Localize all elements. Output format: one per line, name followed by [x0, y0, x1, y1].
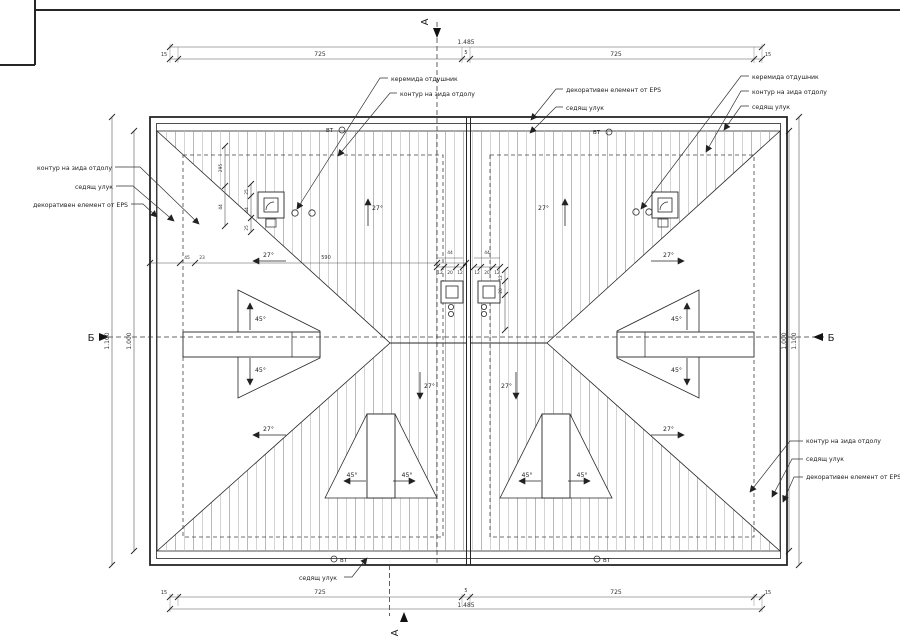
callout-gutter-top-right: седящ улук	[752, 104, 790, 111]
angle-east-upper: 27°	[663, 251, 674, 259]
dim-bottom-edge-left: 15	[161, 590, 167, 596]
dim-chimney-l-20: 20	[447, 270, 453, 276]
dim-bottom-seg-right: 725	[610, 589, 622, 596]
callout-eps-left: декоративен елемент от EPS	[33, 202, 128, 209]
vent-label-top-left: ВТ	[326, 128, 334, 134]
section-a-label-bottom: А	[390, 629, 401, 636]
angle-south-left: 27°	[424, 382, 435, 390]
dimensions-bottom: 15 725 5 725 15 1.485	[161, 588, 771, 612]
callout-tile-vent-top-right: керемида отдушник	[752, 74, 819, 81]
dim-cc-12: 12	[498, 275, 504, 281]
angle-north-right: 27°	[538, 204, 549, 212]
dim-right-outer: 1.100	[791, 332, 798, 349]
callout-wall-contour-top-right: контур на зида отдолу	[752, 89, 827, 96]
callout-wall-contour-left: контур на зида отдолу	[37, 165, 112, 172]
vent-label-bottom-left: ВТ	[340, 558, 348, 564]
dim-top-gap: 5	[464, 50, 467, 56]
angle-west-upper: 27°	[263, 251, 274, 259]
dim-int-45: 45	[184, 255, 190, 261]
dimensions-top: 1.485 15 725 5 725 15	[161, 39, 771, 63]
roof-plan-sheet: А А Б Б 1.485 15 725 5 725 15 15 725 5 7…	[0, 0, 900, 640]
angle-dormer-right-down: 45°	[671, 366, 682, 374]
angle-dormer-br-left: 45°	[522, 471, 533, 479]
dim-bottom-edge-right: 15	[765, 590, 771, 596]
dim-chimney-r-12b: 12	[494, 270, 500, 276]
callout-tile-vent-top-left: керемида отдушник	[391, 76, 458, 83]
dim-bottom-seg-left: 725	[314, 589, 326, 596]
dim-chimney-r-12a: 12	[474, 270, 480, 276]
dim-left-inner: 1.000	[126, 332, 133, 349]
dim-hip-295: 295	[218, 164, 224, 173]
section-a-label-top: А	[420, 18, 431, 25]
dim-hip-44: 44	[218, 204, 224, 210]
angle-west-lower: 27°	[263, 425, 274, 433]
dim-chimney-l-44: 44	[447, 250, 453, 256]
dim-chimney-tl-44: 44	[244, 207, 250, 213]
dim-top-total: 1.485	[457, 39, 474, 46]
angle-dormer-bl-left: 45°	[347, 471, 358, 479]
party-wall	[467, 117, 471, 565]
callout-gutter-right: седящ улук	[806, 456, 844, 463]
callout-wall-contour-top-left: контур на зида отдолу	[400, 91, 475, 98]
callout-eps-top-center: декоративен елемент от EPS	[566, 87, 661, 94]
section-b-label-left: Б	[88, 333, 95, 344]
dim-top-seg-left: 725	[314, 51, 326, 58]
dim-top-edge-right: 15	[765, 52, 771, 58]
dim-chimney-r-44: 44	[484, 250, 490, 256]
dim-bottom-gap: 5	[464, 588, 467, 594]
dim-left-outer: 1.100	[104, 332, 111, 349]
dim-int-23: 23	[199, 255, 205, 261]
dim-top-edge-left: 15	[161, 52, 167, 58]
roof-plan-drawing: А А Б Б 1.485 15 725 5 725 15 15 725 5 7…	[0, 0, 900, 640]
vent-label-top-right: ВТ	[593, 130, 601, 136]
angle-dormer-bl-right: 45°	[402, 471, 413, 479]
angle-dormer-left-down: 45°	[255, 366, 266, 374]
section-b-label-right: Б	[828, 333, 835, 344]
angle-dormer-br-right: 45°	[577, 471, 588, 479]
callout-gutter-bottom: седящ улук	[299, 575, 337, 582]
dim-chimney-tl-25b: 25	[244, 225, 250, 231]
dimensions-left: 1.100 1.000	[104, 114, 137, 568]
dim-chimney-l-12b: 12	[457, 270, 463, 276]
callout-wall-contour-right: контур на зида отдолу	[806, 438, 881, 445]
callout-eps-right: декоративен елемент от EPS	[806, 474, 900, 481]
vent-label-bottom-right: ВТ	[603, 558, 611, 564]
dim-chimney-tl-25a: 25	[244, 189, 250, 195]
callout-gutter-top-center: седящ улук	[566, 105, 604, 112]
angle-north-left: 27°	[372, 204, 383, 212]
dim-chimney-r-20: 20	[484, 270, 490, 276]
dim-chimney-l-12a: 12	[437, 270, 443, 276]
dim-cc-20: 20	[498, 288, 504, 294]
dim-int-590: 590	[321, 255, 331, 261]
angle-dormer-right-up: 45°	[671, 315, 682, 323]
angle-south-right: 27°	[501, 382, 512, 390]
dim-top-seg-right: 725	[610, 51, 622, 58]
angle-dormer-left-up: 45°	[255, 315, 266, 323]
dim-right-inner: 1.000	[781, 332, 788, 349]
callout-gutter-left: седящ улук	[75, 184, 113, 191]
angle-east-lower: 27°	[663, 425, 674, 433]
dim-bottom-total: 1.485	[457, 602, 474, 609]
